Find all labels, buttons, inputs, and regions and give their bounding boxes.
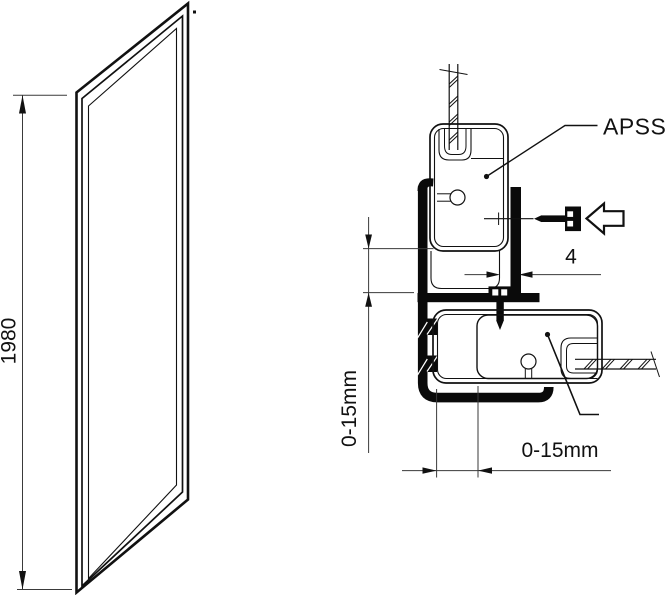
arrowhead-up [19, 95, 26, 113]
screw-hole [450, 190, 465, 205]
panel-inner-frame [82, 16, 183, 586]
horizontal-adjustment-label: 0-15mm [521, 439, 598, 462]
apss-top-profile [430, 124, 508, 289]
screw-head-hole [492, 289, 498, 295]
arrowhead-left [478, 467, 492, 473]
screw-tip [496, 321, 504, 331]
arrowhead-up [365, 293, 372, 307]
break-line [440, 70, 468, 75]
apss-callout: APSS [484, 114, 666, 180]
screw-head-hole [501, 289, 507, 295]
height-dimension: 1980 [0, 95, 72, 589]
arrowhead-left [519, 271, 533, 277]
screw-gap-label: 4 [565, 246, 577, 269]
apss-bottom-profile [433, 310, 602, 383]
arrowhead-down [365, 235, 372, 249]
diagram-canvas: 1980 APSS [0, 0, 669, 595]
glass-channel-inner [445, 129, 467, 155]
leader-line [548, 335, 600, 415]
screw-tip [534, 215, 542, 222]
profile-outer-wall [433, 310, 602, 383]
profile-outer-wall [430, 124, 508, 251]
direction-arrow-icon [587, 204, 624, 234]
panel-outer-frame [77, 4, 189, 593]
glass-hatching [584, 359, 651, 369]
installation-diagram: 1980 APSS [0, 0, 669, 595]
arrowhead-right [487, 271, 501, 277]
break-line [651, 352, 660, 378]
arrowhead-right [423, 467, 437, 473]
panel-glass-edge [89, 29, 177, 579]
vertical-adjustment-label: 0-15mm [338, 370, 361, 447]
screw-head-hole [567, 221, 573, 227]
arrowhead-down [19, 571, 26, 590]
profile-inner-wall [438, 315, 598, 379]
glass-panel-view [77, 4, 197, 593]
screw-head-hole [567, 211, 573, 217]
telescoping-sleeve [431, 251, 500, 289]
panel-corner-detail [193, 11, 196, 14]
glass-hatching [449, 76, 458, 144]
screw-head [565, 207, 581, 232]
profile-name-label: APSS [603, 114, 666, 140]
wall-upright-bar [511, 187, 522, 295]
panel-height-label: 1980 [0, 318, 21, 365]
bracket-top-hook [418, 178, 434, 191]
screw-shaft [542, 215, 566, 222]
screw-horizontal-icon [484, 207, 581, 232]
screw-hole [521, 354, 536, 369]
bracket-flange [418, 293, 540, 302]
bracket-l-profile [423, 186, 549, 398]
screw-vertical-icon [489, 286, 511, 330]
glass-cross-section-top [440, 64, 468, 150]
